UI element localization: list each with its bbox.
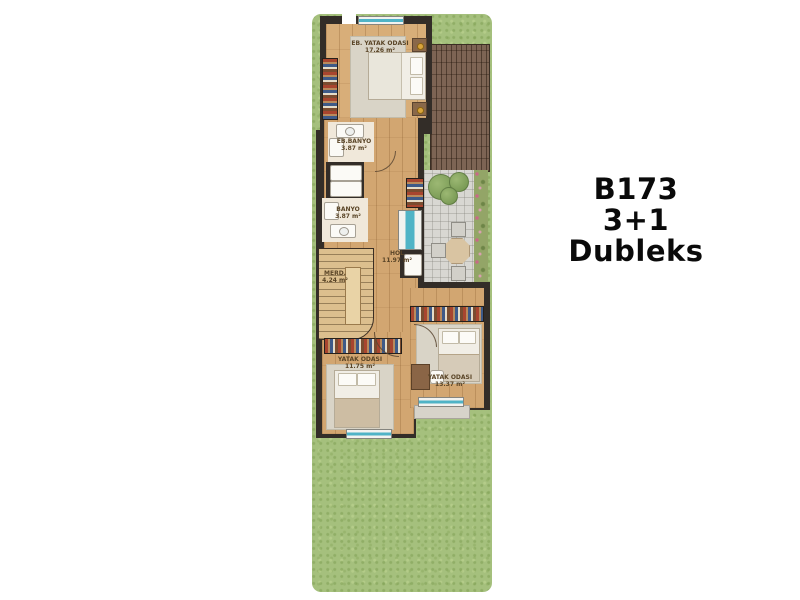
roof-notch <box>342 14 356 24</box>
master-window <box>358 16 404 25</box>
room-area: 3.87 m² <box>341 145 367 152</box>
room-name: MERD. <box>324 270 346 277</box>
pillow <box>338 373 357 386</box>
bathtub-icon <box>330 165 362 181</box>
master-wardrobe <box>322 58 338 120</box>
pillow <box>357 373 376 386</box>
room-label-bathroom: BANYO 3.87 m² <box>326 206 370 220</box>
lamp-icon <box>417 107 424 114</box>
nightstand <box>412 102 427 116</box>
room-label-stairs: MERD. 4.24 m² <box>317 270 353 284</box>
room-label-master-bedroom: EB. YATAK ODASI 17.26 m² <box>340 40 420 54</box>
plan-model: B173 <box>556 174 716 205</box>
sink-icon <box>345 127 355 136</box>
floorplan-canvas: EB. YATAK ODASI 17.26 m² EB.BANYO 3.87 m… <box>0 0 800 600</box>
bathroom-counter <box>336 124 364 138</box>
patio-door <box>398 210 422 250</box>
room-area: 17.26 m² <box>365 47 395 54</box>
room-area: 11.75 m² <box>345 363 375 370</box>
wooden-deck <box>430 44 490 172</box>
sink-icon <box>339 227 349 236</box>
room-name: HOL <box>390 250 404 257</box>
room-area: 11.97 m² <box>382 257 412 264</box>
shower-tray-icon <box>330 181 362 197</box>
entry-step <box>414 405 470 419</box>
bathroom-counter <box>330 224 356 238</box>
tree-icon <box>440 187 458 205</box>
room-name: YATAK ODASI <box>338 356 382 363</box>
blanket <box>335 398 379 427</box>
plan-title-block: B173 3+1 Dubleks <box>556 174 716 267</box>
master-bed <box>368 52 426 100</box>
bedroom3-wardrobe <box>410 306 484 322</box>
room-name: YATAK ODASI <box>428 374 472 381</box>
room-area: 4.24 m² <box>322 277 348 284</box>
plan-type: Dubleks <box>556 236 716 267</box>
room-label-bedroom3: YATAK ODASI 13.37 m² <box>418 374 482 388</box>
tub-alcove <box>326 162 364 198</box>
duvet <box>369 53 402 99</box>
pillow <box>442 331 459 344</box>
bedroom3-window <box>418 397 464 407</box>
room-area: 3.87 m² <box>335 213 361 220</box>
bedroom2-bed <box>334 370 380 428</box>
patio-chair <box>431 243 446 258</box>
pillow <box>410 57 423 75</box>
room-name: BANYO <box>336 206 359 213</box>
pillow <box>410 77 423 95</box>
room-label-bedroom2: YATAK ODASI 11.75 m² <box>328 356 392 370</box>
room-label-master-bathroom: EB.BANYO 3.87 m² <box>330 138 378 152</box>
bedroom2-window <box>346 429 392 439</box>
site-plan-strip: EB. YATAK ODASI 17.26 m² EB.BANYO 3.87 m… <box>312 14 492 592</box>
room-name: EB. YATAK ODASI <box>351 40 408 47</box>
room-label-hall: HOL 11.97 m² <box>367 250 427 264</box>
pillow <box>459 331 476 344</box>
patio-chair <box>451 222 466 237</box>
room-area: 13.37 m² <box>435 381 465 388</box>
room-name: EB.BANYO <box>337 138 371 145</box>
staircase <box>318 248 374 340</box>
patio-chair <box>451 266 466 281</box>
hall-wardrobe <box>406 178 424 208</box>
plan-room-count: 3+1 <box>556 205 716 236</box>
